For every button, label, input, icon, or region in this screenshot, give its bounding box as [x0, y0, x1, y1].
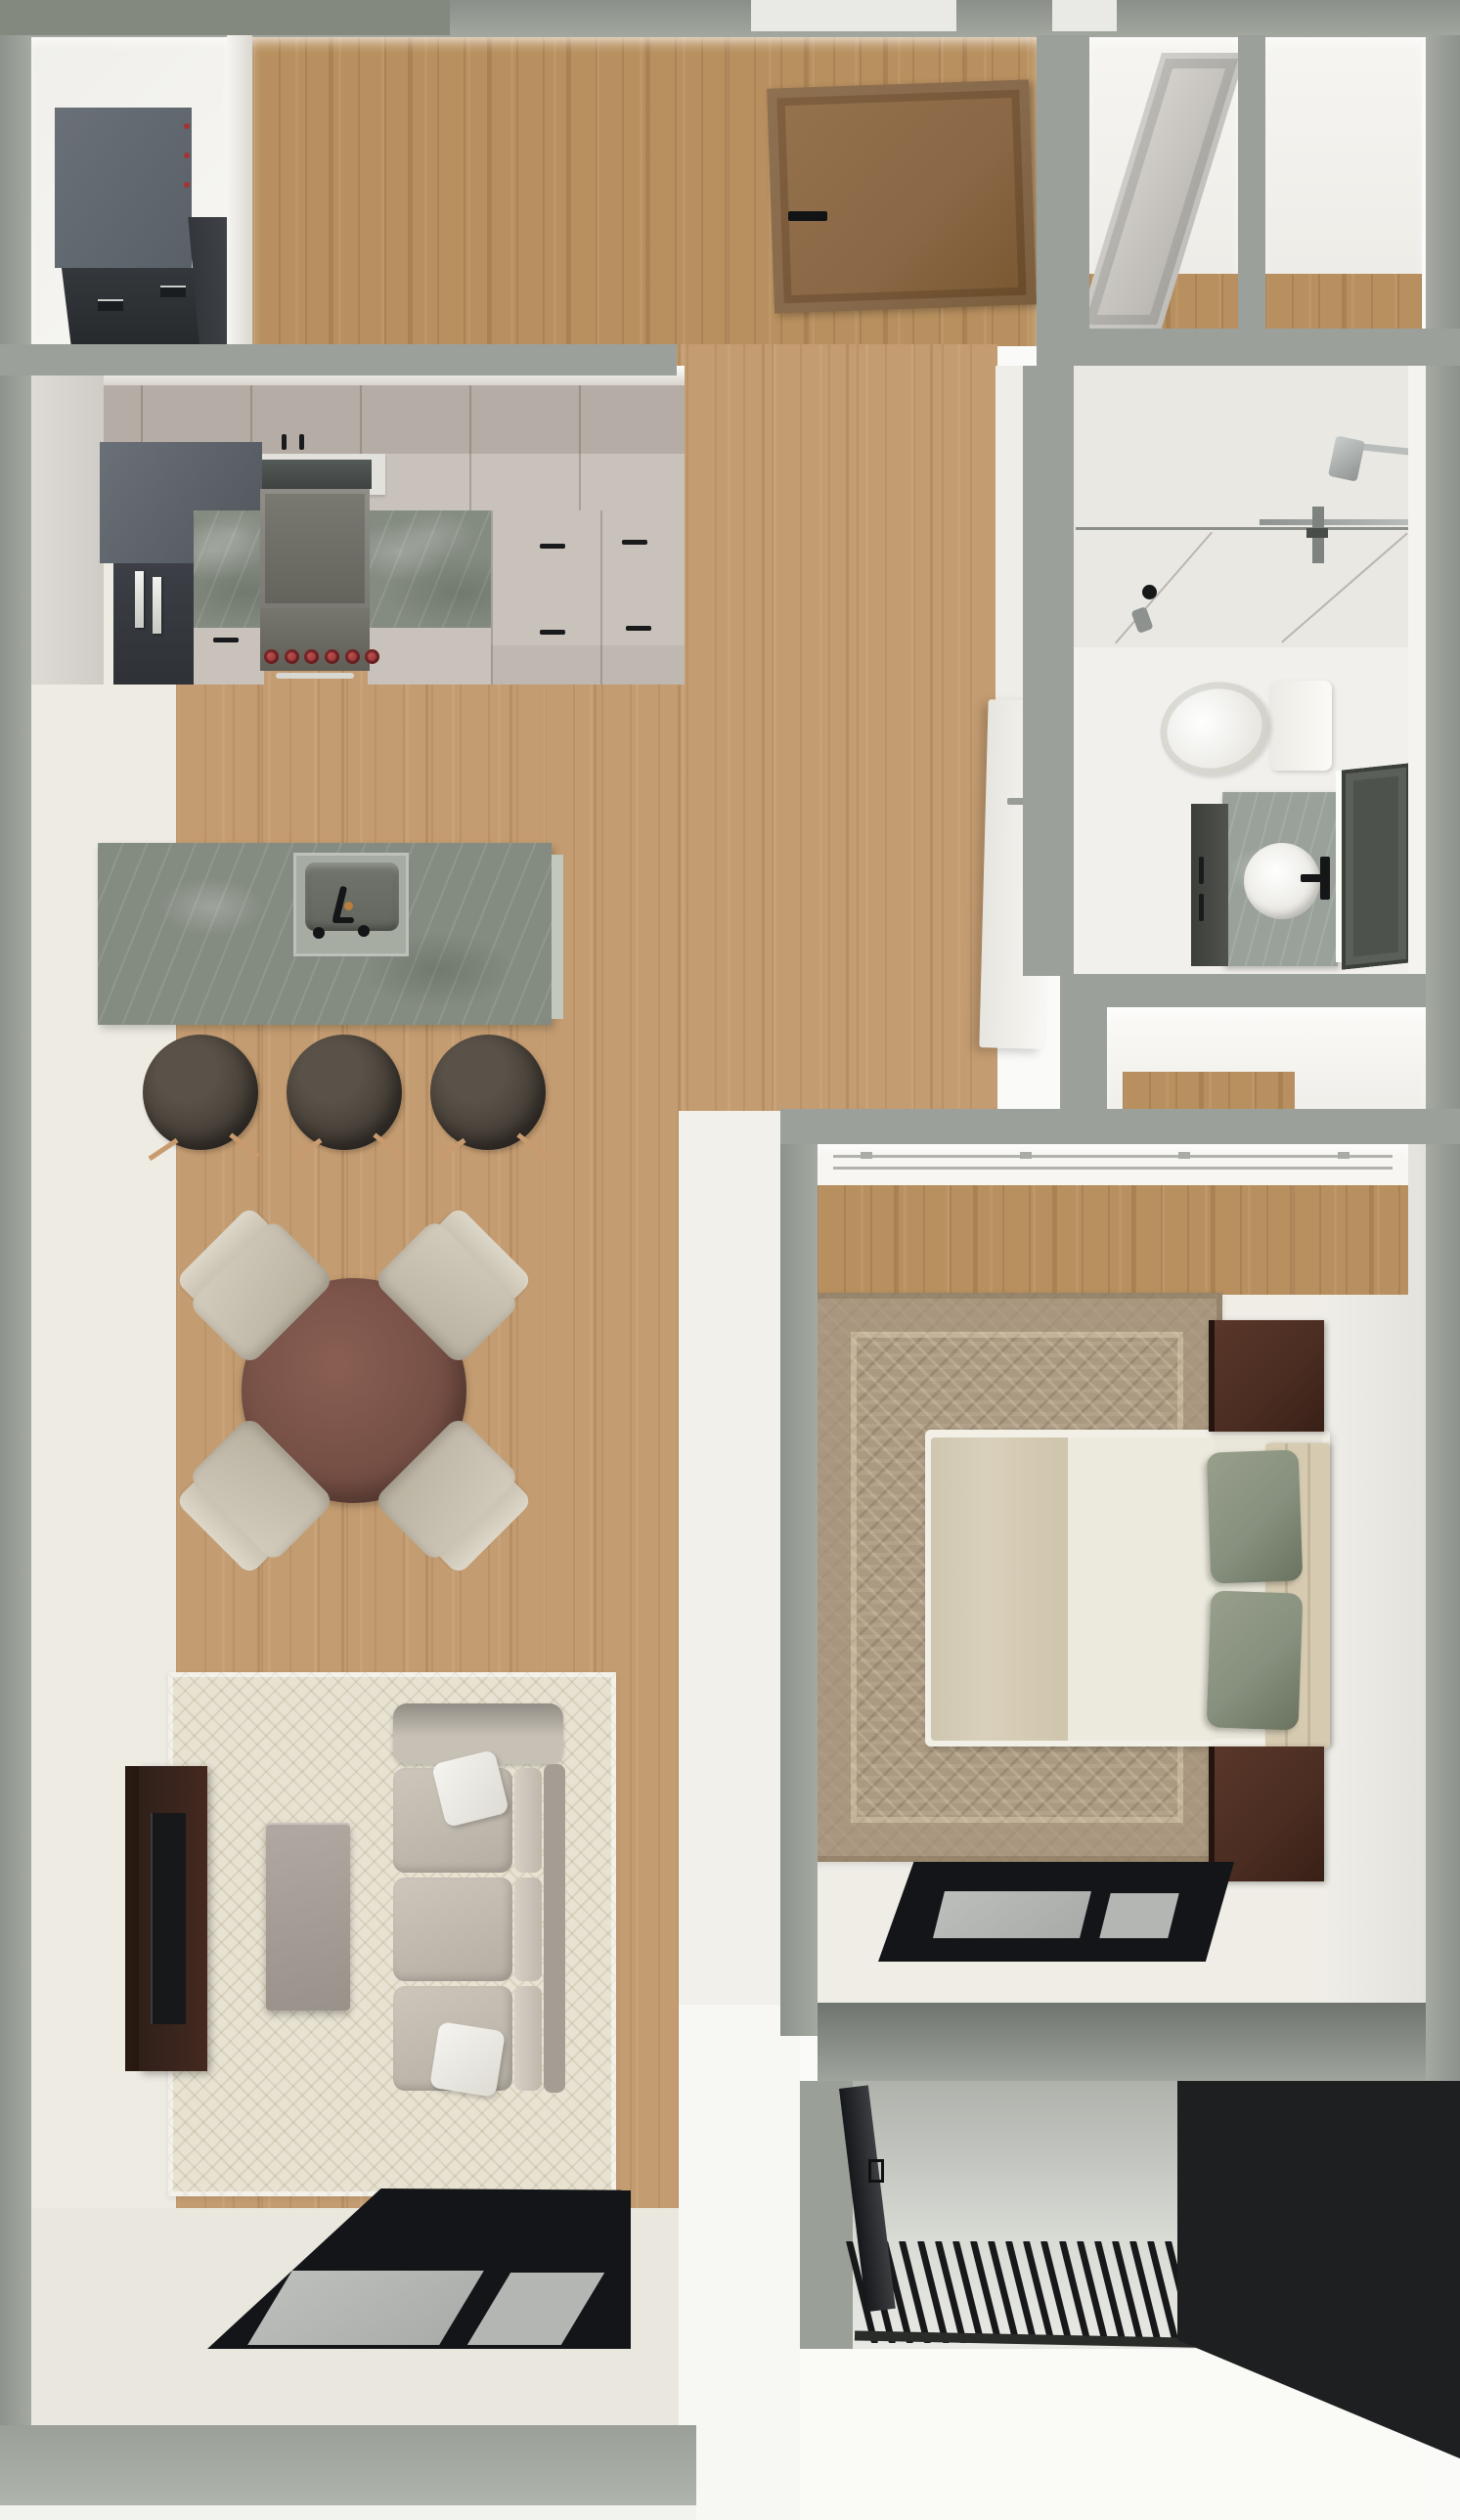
refrigerator-handle-right — [153, 577, 161, 634]
range-hood-vent — [246, 460, 372, 489]
counter-left — [194, 510, 264, 628]
bedroom-window — [878, 1862, 1234, 1962]
washer-indicator-light — [184, 182, 190, 188]
vanity-handle — [1199, 857, 1204, 884]
washer-dryer-top — [55, 108, 192, 268]
hall-closet-right-floor — [1265, 274, 1422, 329]
island-faucet-spout — [332, 917, 354, 923]
bedroom-west-band — [679, 1111, 780, 2005]
sofa-outer-back — [544, 1764, 565, 2093]
bath-faucet-spout — [1301, 874, 1324, 882]
curtain-rail — [833, 1167, 1393, 1170]
sofa-back-cushion — [514, 1878, 542, 1982]
wall-top-dark — [0, 0, 450, 35]
cabinet-handle — [282, 434, 287, 450]
sink-control-left — [313, 927, 325, 939]
oven-handle — [276, 673, 354, 679]
stove-knobs-right — [325, 649, 379, 665]
alcove-floor — [1123, 1072, 1295, 1113]
bed-pillow — [1207, 1590, 1304, 1730]
kitchen-tall-cabinet — [31, 366, 104, 685]
bed-sheet — [1068, 1437, 1215, 1741]
coffee-table — [266, 1823, 350, 2011]
bar-stool — [143, 1035, 258, 1150]
bathroom-mirror — [1342, 763, 1410, 969]
curtain-glider — [861, 1152, 872, 1159]
bedroom-wood-floor — [818, 1185, 1408, 1295]
shower-glass-panel — [1076, 527, 1413, 530]
bathroom-south-wall — [1060, 974, 1426, 1007]
washer-indicator-lights — [184, 123, 192, 188]
range-cooktop — [260, 489, 370, 608]
drawer-handle — [540, 544, 565, 549]
wall-top-notch — [1052, 0, 1117, 31]
bedroom-west-wall — [780, 1144, 818, 2036]
bedroom-window-pane-small — [1099, 1893, 1178, 1938]
laundry-south-wall — [0, 344, 677, 376]
bedroom-north-wall — [780, 1109, 1460, 1144]
entry-door — [767, 79, 1037, 313]
stove-knob — [304, 649, 319, 664]
drawer-handle — [213, 638, 239, 642]
kitchen-drawers-mid — [368, 628, 491, 685]
refrigerator-handle-left — [135, 571, 144, 628]
sofa-seat-cushion — [393, 1878, 512, 1982]
curtain-track-band — [818, 1144, 1408, 1185]
wall-bottom — [0, 2425, 696, 2509]
stove-knob — [345, 649, 360, 664]
sink-control-right — [358, 925, 370, 937]
washer-handle — [98, 299, 123, 311]
alcove-west-wall — [1060, 1007, 1107, 1111]
stove-knob — [365, 649, 379, 664]
shower-control-knob — [1306, 528, 1328, 538]
kitchen-drawers-right — [491, 510, 685, 685]
wall-left — [0, 35, 31, 2433]
curtain-gliders — [861, 1152, 1349, 1162]
bed-pillow — [1207, 1449, 1304, 1583]
drawer-handle — [622, 540, 647, 545]
living-window — [207, 2188, 631, 2349]
kitchen-drawers-left — [194, 628, 264, 685]
sink-soap-dispenser — [344, 902, 353, 910]
tv-screen — [151, 1813, 186, 2024]
curtain-glider — [1178, 1152, 1190, 1159]
balcony-north-wall — [818, 2003, 1460, 2081]
dryer-handle — [160, 286, 186, 297]
washer-indicator-light — [184, 123, 190, 129]
vanity-handle — [1199, 894, 1204, 921]
stove-knobs-left — [264, 649, 319, 665]
bedroom-window-pane-large — [933, 1891, 1091, 1938]
shower-floor — [1074, 366, 1426, 647]
laundry-divider-wall — [227, 35, 252, 346]
bed-duvet — [931, 1437, 1068, 1741]
bar-stool — [430, 1035, 546, 1150]
closet-west-wall — [1037, 35, 1089, 331]
sofa-back-cushions — [514, 1768, 542, 2091]
dining-set — [188, 1224, 520, 1557]
stove-knob — [264, 649, 279, 664]
bathroom-east-wall-face — [1408, 366, 1426, 974]
curtain-glider — [1020, 1152, 1032, 1159]
balcony-door-handle — [868, 2159, 884, 2183]
cabinet-handle — [299, 434, 304, 450]
nightstand — [1209, 1320, 1324, 1432]
outside-strip — [679, 2005, 800, 2520]
wall-top-notch — [751, 0, 956, 31]
counter-right — [368, 510, 491, 628]
bathroom-west-wall — [1023, 366, 1074, 976]
curtain-glider — [1338, 1152, 1349, 1159]
entry-door-handle — [788, 211, 827, 221]
shower-glass-rail — [1260, 519, 1414, 525]
stove-knob — [325, 649, 339, 664]
vanity-cabinet-front — [1191, 804, 1228, 966]
floor-plan — [0, 0, 1460, 2520]
wall-bottom-edge — [0, 2505, 696, 2520]
sofa-back-cushion — [514, 1768, 542, 1873]
sofa-back-cushion — [514, 1986, 542, 2091]
drawer-handle — [626, 626, 651, 631]
bar-stool — [287, 1035, 402, 1150]
toilet-tank — [1269, 681, 1332, 771]
sofa-pillow — [429, 2021, 506, 2098]
washer-indicator-light — [184, 153, 190, 158]
stove-knob — [285, 649, 299, 664]
closet-south-wall — [1037, 329, 1460, 366]
drawer-handle — [540, 630, 565, 635]
shower-drain — [1142, 585, 1157, 599]
closet-divider-wall — [1238, 35, 1265, 331]
island-side-face — [552, 855, 563, 1019]
bar-stools — [143, 1035, 546, 1154]
